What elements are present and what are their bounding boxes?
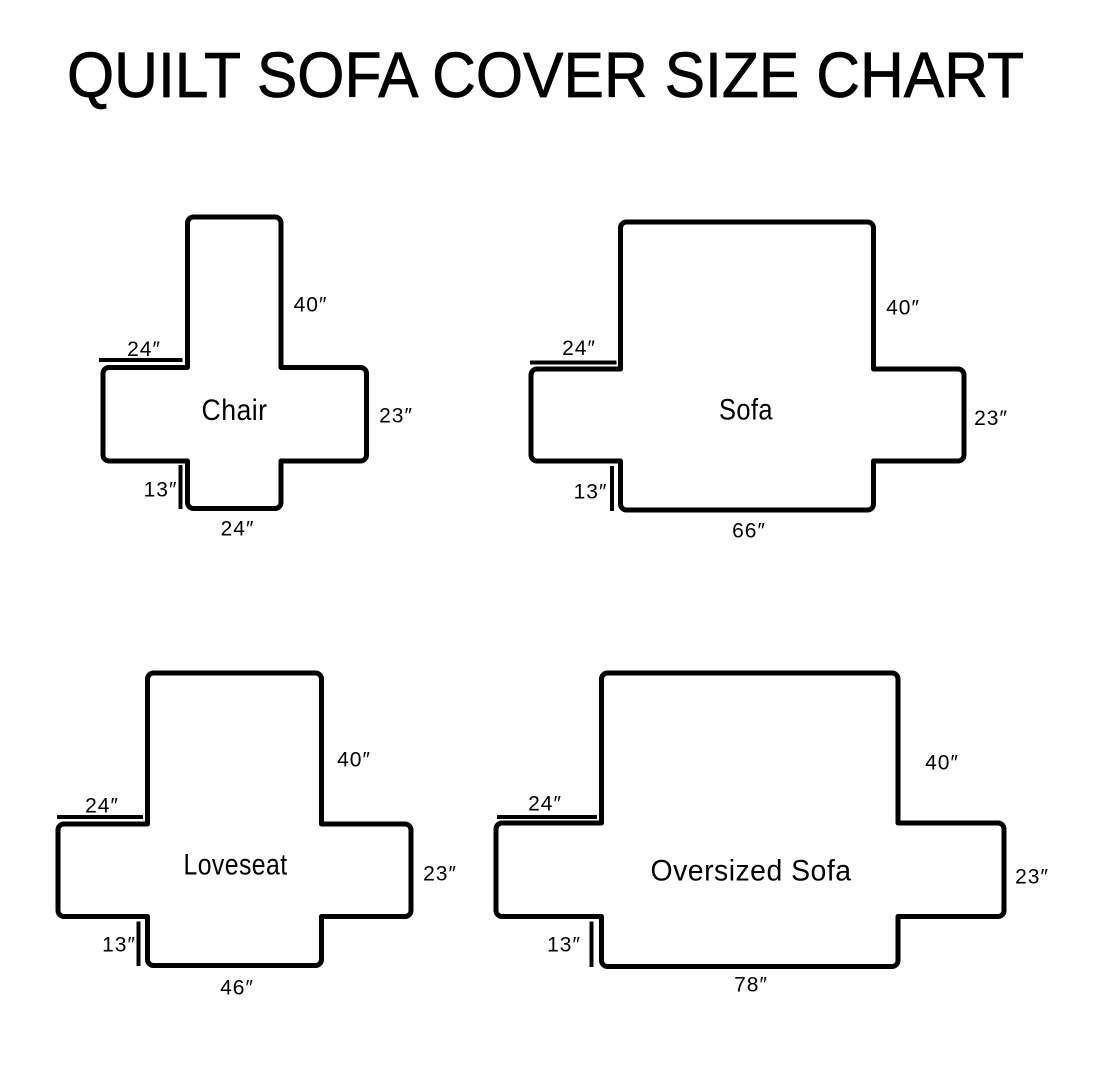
svg-text:Chair: Chair — [202, 394, 268, 427]
svg-text:13″: 13″ — [144, 479, 178, 502]
svg-text:23″: 23″ — [423, 863, 457, 886]
svg-text:40″: 40″ — [886, 297, 920, 320]
svg-text:13″: 13″ — [547, 934, 581, 957]
svg-text:13″: 13″ — [102, 934, 136, 957]
svg-text:24″: 24″ — [221, 518, 255, 541]
svg-text:78″: 78″ — [734, 974, 768, 997]
svg-text:23″: 23″ — [974, 407, 1008, 430]
svg-text:13″: 13″ — [574, 481, 608, 504]
svg-text:24″: 24″ — [127, 338, 161, 361]
svg-text:24″: 24″ — [562, 337, 596, 360]
svg-text:46″: 46″ — [220, 977, 254, 1000]
svg-text:24″: 24″ — [85, 795, 119, 818]
svg-text:Sofa: Sofa — [719, 394, 773, 427]
svg-text:23″: 23″ — [379, 405, 413, 428]
svg-text:40″: 40″ — [925, 752, 959, 775]
svg-text:40″: 40″ — [337, 749, 371, 772]
svg-text:23″: 23″ — [1015, 866, 1049, 889]
svg-text:QUILT SOFA COVER SIZE CHART: QUILT SOFA COVER SIZE CHART — [67, 39, 1024, 111]
svg-text:24″: 24″ — [528, 793, 562, 816]
svg-text:Oversized Sofa: Oversized Sofa — [651, 855, 852, 888]
svg-text:66″: 66″ — [732, 520, 766, 543]
svg-text:40″: 40″ — [294, 294, 328, 317]
svg-text:Loveseat: Loveseat — [184, 849, 288, 882]
